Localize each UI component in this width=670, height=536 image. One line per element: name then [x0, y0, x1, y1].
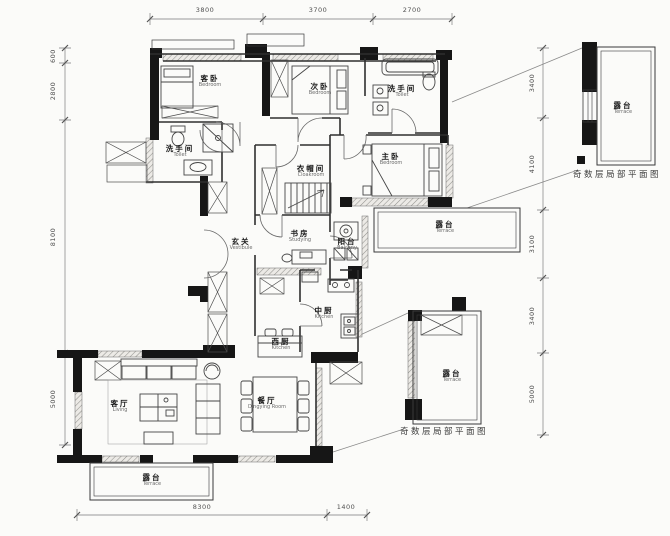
- floorplan-drawing: [0, 0, 670, 536]
- dimension-rulers: [59, 13, 549, 521]
- dim-left-4: 5000: [49, 390, 57, 409]
- door-swings: [200, 109, 416, 326]
- dim-top-2: 3700: [309, 6, 328, 14]
- dim-left-3: 8100: [49, 228, 57, 247]
- dim-bottom-2: 1400: [337, 503, 356, 511]
- detail-caption-upper: 奇数层局部平面图: [573, 168, 661, 180]
- dim-bottom-1: 8300: [193, 503, 212, 511]
- dim-right-5: 5000: [528, 385, 536, 404]
- dim-right-1: 3400: [528, 74, 536, 93]
- dim-left-2: 2800: [49, 82, 57, 101]
- detail-caption-lower: 奇数层局部平面图: [400, 425, 488, 437]
- dim-right-3: 3100: [528, 235, 536, 254]
- dim-top-3: 2700: [403, 6, 422, 14]
- dim-left-1: 600: [49, 49, 57, 63]
- dim-right-2: 4100: [528, 155, 536, 174]
- leader-lines: [333, 48, 582, 452]
- terrace-outlines: [90, 34, 655, 500]
- dim-right-4: 3400: [528, 307, 536, 326]
- floorplan-canvas: 客卧Bedroom 次卧Bedroom 洗手间Toilet 洗手间Toilet …: [0, 0, 670, 536]
- dim-top-1: 3800: [196, 6, 215, 14]
